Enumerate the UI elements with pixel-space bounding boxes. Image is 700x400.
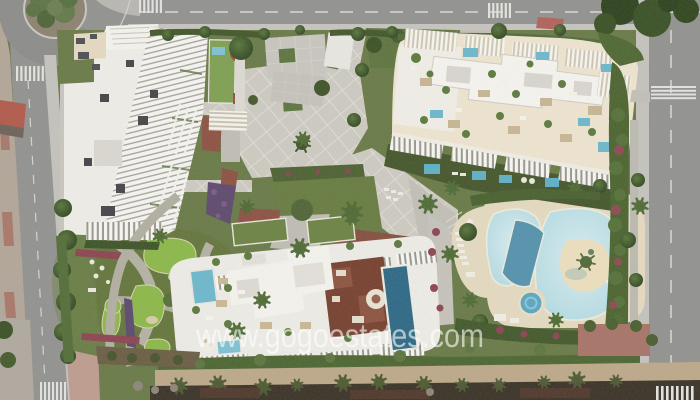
- svg-text:www.gogoestates.com: www.gogoestates.com: [195, 317, 484, 354]
